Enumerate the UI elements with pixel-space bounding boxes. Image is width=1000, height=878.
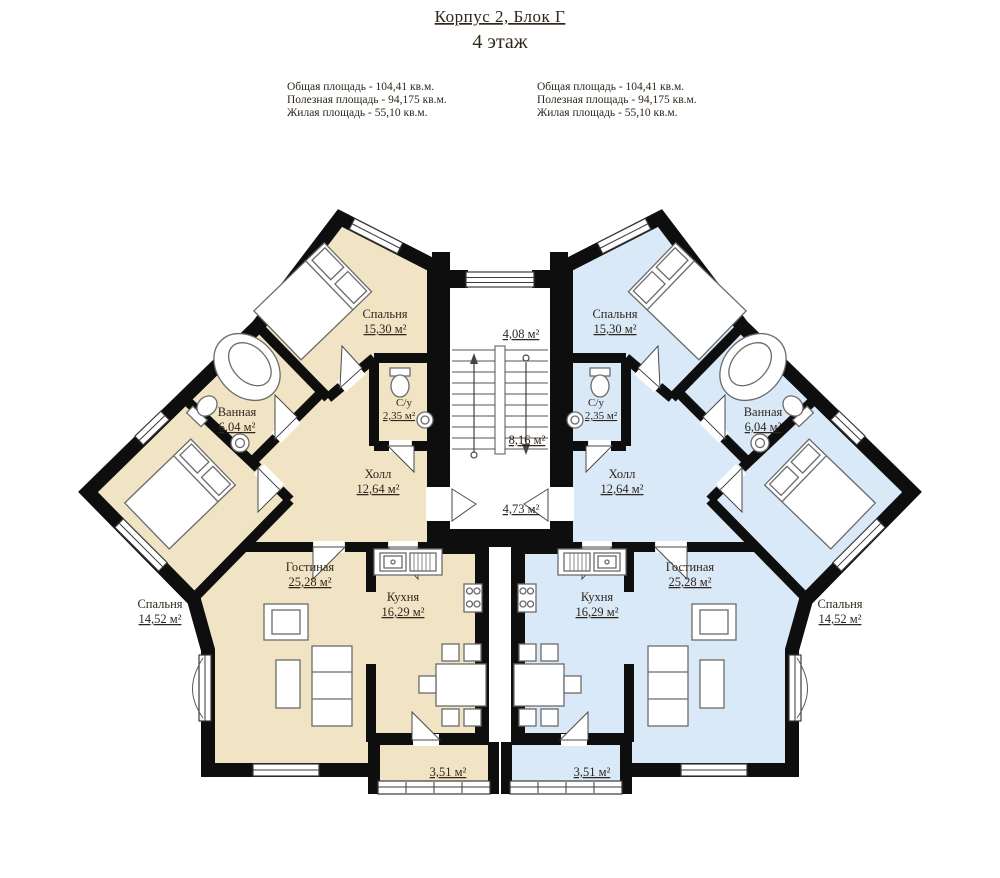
room-label-bathroom-right: Ванная [744,405,783,419]
right-apartment [501,218,912,794]
summary-right-total: Общая площадь - 104,41 кв.м. [537,81,684,93]
summary-right: Общая площадь - 104,41 кв.м. Полезная пл… [537,81,697,119]
left-apartment [88,218,499,794]
room-area-kitchen-left: 16,29 м² [382,605,425,619]
room-area-bedroom-top-left: 15,30 м² [364,322,407,336]
room-area-bathroom-right: 6,04 м² [745,420,782,434]
room-area-hall-left: 12,64 м² [357,482,400,496]
room-label-wc-right: С/у [588,397,604,409]
floor-plan-canvas: Корпус 2, Блок Г 4 этаж Общая площадь - … [0,0,1000,878]
page-title: Корпус 2, Блок Г [435,7,566,26]
room-label-bedroom-top-left: Спальня [362,307,407,321]
summary-left: Общая площадь - 104,41 кв.м. Полезная пл… [287,81,447,119]
page-subtitle: 4 этаж [472,31,527,53]
room-label-hall-right: Холл [609,467,636,481]
room-label-bedroom-top-right: Спальня [592,307,637,321]
stair-upper-landing-label: 4,08 м² [503,327,540,341]
room-label-living-left: Гостиная [286,560,335,574]
room-area-bedroom-top-right: 15,30 м² [594,322,637,336]
stair-lower-landing-label: 4,73 м² [503,502,540,516]
room-label-wc-left: С/у [396,397,412,409]
room-area-wc-left: 2,35 м² [383,410,416,422]
balcony-area-left: 3,51 м² [430,765,467,779]
room-area-bathroom-left: 6,04 м² [219,420,256,434]
room-area-living-left: 25,28 м² [289,575,332,589]
room-label-kitchen-left: Кухня [387,590,420,604]
room-label-bathroom-left: Ванная [218,405,257,419]
room-label-hall-left: Холл [365,467,392,481]
room-label-living-right: Гостиная [666,560,715,574]
room-label-bedroom-bottom-right: Спальня [817,597,862,611]
summary-right-living: Жилая площадь - 55,10 кв.м. [537,107,678,119]
summary-right-usable: Полезная площадь - 94,175 кв.м. [537,94,697,106]
room-area-wc-right: 2,35 м² [585,410,618,422]
summary-left-total: Общая площадь - 104,41 кв.м. [287,81,434,93]
room-area-living-right: 25,28 м² [669,575,712,589]
room-area-hall-right: 12,64 м² [601,482,644,496]
stairwell-window [466,272,534,287]
balcony-area-right: 3,51 м² [574,765,611,779]
room-label-bedroom-bottom-left: Спальня [137,597,182,611]
summary-left-usable: Полезная площадь - 94,175 кв.м. [287,94,447,106]
room-area-bedroom-bottom-left: 14,52 м² [139,612,182,626]
stair-flight-label: 8,16 м² [509,433,546,447]
floor-plan-page: Корпус 2, Блок Г 4 этаж Общая площадь - … [0,0,1000,878]
room-area-kitchen-right: 16,29 м² [576,605,619,619]
summary-left-living: Жилая площадь - 55,10 кв.м. [287,107,428,119]
room-area-bedroom-bottom-right: 14,52 м² [819,612,862,626]
room-label-kitchen-right: Кухня [581,590,614,604]
